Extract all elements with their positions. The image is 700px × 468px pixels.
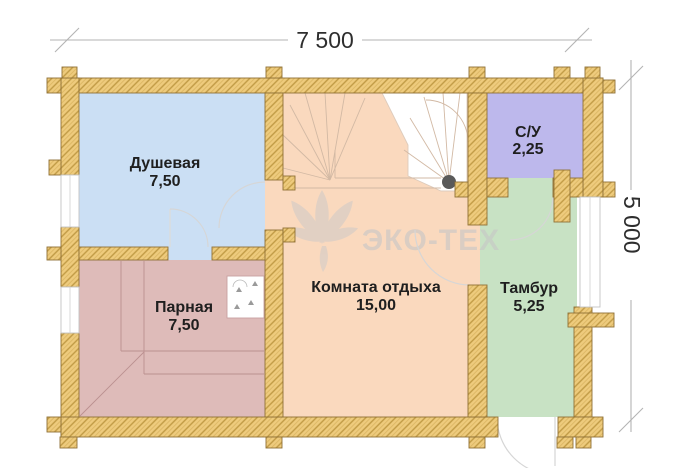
- floor-plan-drawing: ЭКО-ТЕХ: [0, 0, 700, 468]
- wall-segment: [61, 78, 603, 93]
- wall-segment: [265, 93, 283, 180]
- room-area-tambur: 5,25: [513, 298, 544, 315]
- room-label-komnata: Комната отдыха: [311, 279, 441, 296]
- doorway-floor: [168, 247, 212, 260]
- floor-plan-page: ЭКО-ТЕХ: [0, 0, 700, 468]
- room-area-su: 2,25: [512, 141, 543, 158]
- entrance-door-arc: [497, 417, 555, 468]
- wall-segment: [487, 178, 508, 197]
- room-label-su: С/У: [515, 124, 542, 141]
- wall-segment: [61, 227, 79, 287]
- wall-segment: [265, 230, 283, 417]
- wall-segment: [558, 417, 603, 437]
- dim-height-label: 5 000: [619, 196, 645, 254]
- dim-width-label: 7 500: [296, 27, 354, 53]
- watermark-brand-text: ЭКО-ТЕХ: [362, 224, 500, 257]
- room-label-tambur: Тамбур: [500, 280, 558, 297]
- wall-segment: [79, 247, 168, 260]
- room-label-parnaya: Парная: [155, 299, 213, 316]
- wall-segment: [468, 93, 487, 225]
- wall-segment: [468, 285, 487, 417]
- room-area-parnaya: 7,50: [168, 317, 199, 334]
- sauna-stove: [227, 276, 264, 318]
- wall-segment: [61, 417, 498, 437]
- doorway-floor: [508, 178, 553, 197]
- room-area-dushevaya: 7,50: [149, 173, 180, 190]
- dimension-height: 5 000: [619, 60, 645, 432]
- dimension-width: 7 500: [50, 27, 592, 53]
- room-area-komnata: 15,00: [356, 297, 396, 314]
- doorway-floor: [265, 180, 283, 230]
- stair-newel-dot: [442, 175, 456, 189]
- wall-segment: [583, 78, 603, 197]
- room-label-dushevaya: Душевая: [130, 155, 201, 172]
- wall-segment: [61, 78, 79, 175]
